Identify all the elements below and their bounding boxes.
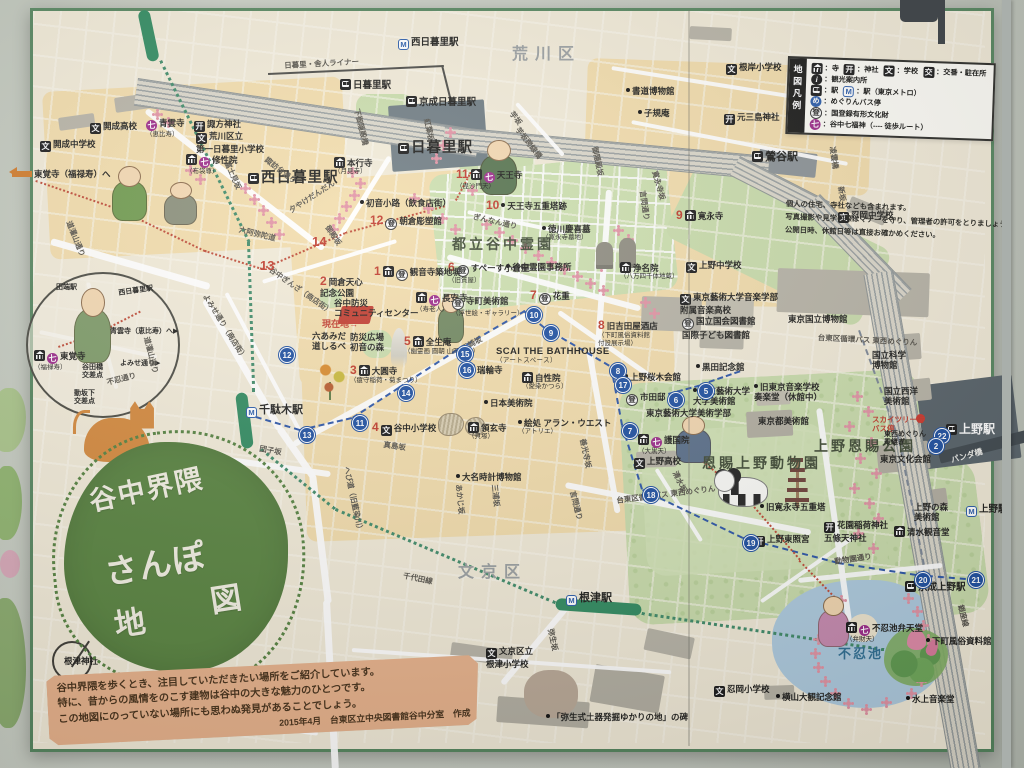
megurin-busstop-16: 16 <box>459 362 475 378</box>
label-text: 初音小路（飲食店街） <box>366 198 451 208</box>
title-line1: 谷中界隈 <box>85 456 207 518</box>
legend-item-label: ：谷中七福神（---- 徒歩ルート） <box>822 119 927 133</box>
temple-icon <box>359 365 370 376</box>
label-text-line2: 美術館 <box>914 512 948 522</box>
label-text: 上野の森 <box>914 502 948 512</box>
poi-label: 9寛永寺 <box>676 208 723 222</box>
metro-icon: M <box>246 407 257 418</box>
poi-label: 文東京藝術大学音楽学部附属音楽高校 <box>680 292 778 315</box>
sakura-route-marker <box>453 227 458 232</box>
label-text: 旧寛永寺五重塔 <box>766 502 826 512</box>
megurin-busstop-6: 6 <box>668 392 684 408</box>
label-text-line2: 奏楽堂（休館中） <box>754 392 822 402</box>
shinobazu-pond-label: 不忍池 <box>838 646 883 661</box>
sakura-route-marker <box>847 424 852 429</box>
poi-label: 七東覚寺（福禄寿） <box>34 350 86 372</box>
poi-label: 東京国立博物館 <box>788 314 848 324</box>
poi-label: 東京文化会館 <box>880 454 931 464</box>
temple-icon <box>846 622 857 633</box>
label-text: 田端駅 <box>56 284 77 291</box>
label-text: 根岸小学校 <box>739 62 782 72</box>
label-text: 開成高校 <box>103 121 137 131</box>
wall-pillar <box>1002 0 1011 768</box>
label-text: 寛永寺 <box>698 211 724 221</box>
label-text: 花園稲荷神社 <box>837 520 888 530</box>
sakura-route-marker <box>358 181 363 186</box>
poi-label: 領玄寺（貝塚） <box>468 422 507 441</box>
station-icon <box>248 173 259 184</box>
temple-icon <box>413 336 424 347</box>
road-label: あかじ坂 <box>453 484 465 515</box>
label-subtext: （愛染かつら） <box>522 383 568 391</box>
label-text: 日暮里駅 <box>353 80 391 91</box>
label-text: 東京都美術館 <box>758 416 809 426</box>
spot-number: 10 <box>486 198 499 212</box>
info-icon: i <box>811 74 822 85</box>
poi-label: 文開成中学校 <box>40 139 96 152</box>
label-text: 護国院 <box>664 435 690 445</box>
yanaka-cemetery-label: 都立谷中霊園 <box>452 236 554 253</box>
label-text: 西日暮里駅 <box>411 37 459 48</box>
megurin-busstop-12: 12 <box>279 347 295 363</box>
sakura-route-marker <box>915 609 920 614</box>
wall-leaf-decoration <box>0 598 26 728</box>
label-text: 朝倉彫塑館 <box>399 216 442 226</box>
label-text: 青雲寺（恵比寿）へ▶ <box>110 328 178 335</box>
label-subtext: （下町風俗資料館 <box>598 332 658 340</box>
sakura-route-marker <box>601 288 606 293</box>
station-sm-label: 京成日暮里駅 <box>406 96 476 108</box>
wall-flower-decoration <box>0 550 20 578</box>
label-text: 上野駅 <box>959 422 995 436</box>
sakura-route-marker <box>352 193 357 198</box>
police-icon: 交 <box>923 67 934 78</box>
label-subtext: （恵比寿） <box>146 131 185 139</box>
legend-item-label: ：神社 <box>857 65 879 77</box>
poi-label: 旧東京音楽学校奏楽堂（休館中） <box>754 382 822 402</box>
megurin-busstop-19: 19 <box>743 535 759 551</box>
map-legend: 地図凡例 ：寺开：神社文：学校交：交番・駐在所i：観光案内所：駅M：駅（東京メト… <box>785 56 996 141</box>
seven-icon: 七 <box>199 157 210 168</box>
temple-icon <box>620 262 631 273</box>
legend-rows: ：寺开：神社文：学校交：交番・駐在所i：観光案内所：駅M：駅（東京メトロ）め：め… <box>804 59 993 139</box>
poi-label: 4文谷中小学校 <box>372 420 436 436</box>
poi-sm-label: 谷田橋交差点 <box>82 364 103 381</box>
label-text: SCAI THE BATHHOUSE <box>496 346 610 357</box>
station-icon <box>398 143 409 154</box>
poi-label: 横山大観記念館 <box>776 692 842 702</box>
poi-dot <box>484 400 488 404</box>
label-text: 東覚寺（福禄寿）へ <box>34 169 111 179</box>
megurin-icon: め <box>810 96 821 107</box>
poi-sm-label: 東西めぐりん乗継ぎ <box>884 431 926 448</box>
label-text: スカイツリー行 <box>872 415 925 424</box>
sakura-route-marker <box>261 208 266 213</box>
label-text: 全生庵 <box>426 337 452 347</box>
poi-dot <box>360 200 364 204</box>
poi-label: 2岡倉天心記念公園 <box>320 274 363 298</box>
label-text: 元三島神社 <box>737 112 780 122</box>
school-icon: 文 <box>883 65 894 76</box>
label-text: 防災広場 <box>350 332 384 342</box>
poi-label: 国立西洋美術館 <box>884 386 918 406</box>
label-text: 不忍池弁天堂 <box>872 623 923 633</box>
station-nezu: M根津駅 <box>566 592 612 606</box>
sakura-route-marker <box>846 701 851 706</box>
poi-label: 登寺町美術館（浮世絵・ギャラリー） <box>452 296 524 318</box>
label-text: 京成日暮里駅 <box>419 97 476 108</box>
chrysanthemum-illustration <box>316 360 350 400</box>
poi-label: 8旧吉田屋酒店（下町風俗資料館付設展示場） <box>598 318 658 347</box>
poi-label: 本行寺（月見寺） <box>334 157 373 176</box>
label-text: 浄名院 <box>633 263 659 273</box>
poi-dot <box>501 203 505 207</box>
legend-item: 开：神社 <box>844 64 879 76</box>
hanging-rod <box>938 0 945 44</box>
poi-label: 10天王寺五重塔跡 <box>486 198 567 212</box>
poi-dot <box>456 474 460 478</box>
title-line3b: 図 <box>207 572 245 621</box>
sakura-route-marker <box>864 707 869 712</box>
megurin-busstop-21: 21 <box>968 572 984 588</box>
label-text: 国立科学 <box>872 350 906 360</box>
label-text-line2: 博物館 <box>872 360 906 370</box>
poi-label: 文荒川区立第一日暮里小学校 <box>196 131 264 154</box>
poi-label: 初音小路（飲食店街） <box>360 198 451 208</box>
metro-icon: M <box>566 595 577 606</box>
seam-line <box>688 10 690 746</box>
label-text: 領玄寺 <box>481 423 507 433</box>
label-text: 清水観音堂 <box>907 527 950 537</box>
poi-label: 11七天王寺（毘沙門天） <box>456 167 522 191</box>
megurin-busstop-9: 9 <box>543 325 559 341</box>
label-text: 国立西洋 <box>884 386 918 396</box>
label-text: 「弥生式土器発掘ゆかりの地」の碑 <box>552 712 688 722</box>
sakura-route-marker <box>252 197 257 202</box>
poi-dot <box>542 226 546 230</box>
poi-dot <box>693 388 697 392</box>
sakura-route-marker <box>616 228 621 233</box>
seven-icon: 七 <box>429 295 440 306</box>
school-icon: 文 <box>634 458 645 469</box>
poi-dot <box>546 714 550 718</box>
spot-number: 8 <box>598 318 605 332</box>
label-subtext: （月見寺） <box>334 168 373 176</box>
school-icon: 文 <box>714 686 725 697</box>
sakura-route-marker <box>823 679 828 684</box>
label-text-line2: 交差点 <box>74 398 95 406</box>
label-text: 書道博物館 <box>632 86 675 96</box>
label-text: 本行寺 <box>347 158 373 168</box>
label-text: 徳川慶喜墓 <box>548 224 591 234</box>
label-text: 天王寺五重塔跡 <box>507 201 567 211</box>
shrine-icon: 开 <box>724 114 735 125</box>
label-text: 観音寺築地塀 <box>410 267 461 277</box>
label-text: 谷中小学校 <box>394 423 437 433</box>
label-text: 文京区立 <box>499 646 533 656</box>
megurin-busstop-2: 2 <box>928 438 944 454</box>
label-text: 14 <box>312 234 326 249</box>
bunkazai-icon: 登 <box>810 107 822 119</box>
district-bunkyo: 文京区 <box>458 564 527 583</box>
temple-icon <box>383 266 394 277</box>
poi-latin-label: SCAI THE BATHHOUSE（アートスペース） <box>496 346 610 365</box>
poi-dot <box>926 638 930 642</box>
num-lone-label: 14 <box>312 234 326 249</box>
poi-sm-label: 田端駅 <box>56 284 77 292</box>
legend-item-label: ：寺 <box>824 63 839 74</box>
station-uguisudani: 鶯谷駅 <box>752 151 798 164</box>
label-text: 黒田記念館 <box>702 362 745 372</box>
poi-label: 旧寛永寺五重塔 <box>760 502 826 512</box>
megurin-busstop-14: 14 <box>398 385 414 401</box>
temple-icon <box>522 372 533 383</box>
sakura-route-marker <box>871 546 876 551</box>
wall-leaf-decoration <box>0 388 26 452</box>
current-location-marker: 現在地→ <box>322 319 358 330</box>
label-text: 千駄木駅 <box>259 404 303 416</box>
bunkazai-icon: 登 <box>626 394 638 406</box>
sakura-route-marker <box>866 409 871 414</box>
poi-label: 文上野高校 <box>634 456 681 469</box>
label-text-line2: 道しるべ <box>312 341 346 351</box>
poi-label: 東覚寺（福禄寿）へ <box>34 169 111 179</box>
label-subtext: （毘沙門天） <box>456 183 522 191</box>
label-text: 荒川区 <box>512 46 581 63</box>
poi-label: 浄名院（八万四千体地蔵） <box>620 262 679 281</box>
poi-label: 黒田記念館 <box>696 362 745 372</box>
spot-number: 12 <box>370 213 383 227</box>
label-text-line2: 根津小学校 <box>486 659 533 669</box>
temple-icon <box>894 526 905 537</box>
station-icon <box>752 151 763 162</box>
label-text: すぺーす小倉屋 <box>471 263 530 273</box>
poi-label: 国立科学博物館 <box>872 350 906 370</box>
poi-label: 東京都美術館 <box>758 416 809 426</box>
label-text-line2: 附属音楽高校 <box>680 305 778 315</box>
label-text: 上野東照宮 <box>767 534 810 544</box>
poi-label: 子規庵 <box>638 108 670 118</box>
temple-icon <box>685 210 696 221</box>
label-text-line2: 五條天神社 <box>824 533 888 543</box>
ueno-zoo-label: 恩賜上野動物園 <box>702 455 821 472</box>
sakura-route-marker <box>874 471 879 476</box>
legend-item: 七：谷中七福神（---- 徒歩ルート） <box>809 119 927 134</box>
poi-label: 7登花重 <box>530 288 570 305</box>
seven-icon: 七 <box>484 172 495 183</box>
spot-number: 11 <box>456 167 469 181</box>
sakura-route-marker <box>277 232 282 237</box>
temple-icon <box>638 434 649 445</box>
label-text: 六あみだ <box>312 331 346 341</box>
sakura-route-marker <box>344 204 349 209</box>
poi-dot <box>776 694 780 698</box>
temple-icon <box>811 63 822 74</box>
sakura-route-marker <box>884 700 889 705</box>
panda-illustration <box>718 472 766 510</box>
label-text: 天王寺 <box>497 170 523 180</box>
label-text: 日暮里駅 <box>411 140 473 156</box>
station-nippori: 日暮里駅 <box>398 140 473 157</box>
label-text: 動坂下 <box>74 390 95 397</box>
bunkazai-icon: 登 <box>396 269 408 281</box>
spot-number: 1 <box>374 264 381 278</box>
label-text: 現在地→ <box>322 319 358 329</box>
poi-label: 谷中防災コミュニティセンター <box>334 298 419 318</box>
label-text-line2: 記念公園 <box>320 288 363 298</box>
poi-sm-label: 動坂下交差点 <box>74 390 95 407</box>
label-text: 旧吉田屋酒店 <box>607 321 658 331</box>
label-text: 瑞輪寺 <box>477 365 503 375</box>
station-icon <box>905 581 916 592</box>
label-subtext: （布袋尊） <box>186 168 238 176</box>
label-text: 東京文化会館 <box>880 454 931 464</box>
legend-item: 文：学校 <box>883 65 918 77</box>
label-text: 横山大観記念館 <box>782 692 842 702</box>
label-subtext: （アトリエ） <box>518 428 611 436</box>
poi-dot <box>626 88 630 92</box>
poi-label: 1登観音寺築地塀 <box>374 264 461 281</box>
label-text-line2: 乗継ぎ <box>884 439 926 447</box>
poi-dot <box>638 110 642 114</box>
label-text: 真島坂 <box>383 440 407 452</box>
sakura-route-marker <box>816 665 821 670</box>
sakura-route-marker <box>497 230 502 235</box>
bunkazai-icon: 登 <box>539 293 551 305</box>
label-text-line2: コミュニティセンター <box>334 308 419 318</box>
label-text-line2: 美術館 <box>884 396 918 406</box>
label-text: 修性院 <box>212 155 238 165</box>
temple-icon <box>334 157 345 168</box>
label-text: 大名時計博物館 <box>462 472 522 482</box>
label-subtext: （浮世絵・ギャラリー） <box>452 310 524 318</box>
poi-sm-label: 青雲寺（恵比寿）へ▶ <box>110 328 178 336</box>
poi-label: 下町風俗資料館 <box>926 636 992 646</box>
district-arakawa: 荒川区 <box>512 46 581 65</box>
legend-item-label: ：駅 <box>824 85 839 96</box>
label-text: 東覚寺 <box>60 351 86 361</box>
road-label: 三浦坂 <box>489 484 500 507</box>
poi-label: 文根岸小学校 <box>726 62 782 75</box>
label-text: 水上音楽堂 <box>912 694 955 704</box>
poi-label: 「弥生式土器発掘ゆかりの地」の碑 <box>546 712 688 722</box>
school-icon: 文 <box>90 123 101 134</box>
label-text: 恩賜上野動物園 <box>702 455 821 471</box>
poi-label: 自性院（愛染かつら） <box>522 372 568 391</box>
sakura-route-marker <box>906 596 911 601</box>
title-line3a: 地 <box>111 596 149 645</box>
poi-label: 六あみだ道しるべ <box>312 331 346 351</box>
poi-label: 12登朝倉彫塑館 <box>370 213 442 230</box>
label-text: 荒川区立 <box>209 131 243 141</box>
poi-label: 大名時計博物館 <box>456 472 522 482</box>
sakura-route-marker <box>536 253 541 258</box>
sakura-route-marker <box>652 311 657 316</box>
sakura-route-marker <box>867 501 872 506</box>
map-title: 谷中界隈 さんぽ 地 図 <box>64 442 288 672</box>
label-subtext: （弁財天） <box>846 636 923 644</box>
temple-icon <box>34 350 45 361</box>
station-icon <box>406 96 417 107</box>
sakura-route-marker <box>269 220 274 225</box>
poi-label: 七護国院（大黒天） <box>638 434 690 456</box>
sakura-route-marker <box>813 651 818 656</box>
poi-label: 防災広場初音の森 <box>350 332 384 352</box>
megurin-busstop-15: 15 <box>457 346 473 362</box>
label-text: 花重 <box>553 291 570 301</box>
poi-dot <box>906 696 910 700</box>
station-ueno: 上野駅 <box>946 422 995 436</box>
poi-label: 开元三島神社 <box>724 112 780 125</box>
label-text: 諏方神社 <box>207 119 241 129</box>
temple-icon <box>468 422 479 433</box>
poi-label: 开花園稲荷神社五條天神社 <box>824 520 888 543</box>
poi-label: 文文京区立根津小学校 <box>486 646 533 669</box>
benzaiten-illustration <box>816 596 850 646</box>
legend-row: 登：国登録有形文化財七：谷中七福神（---- 徒歩ルート） <box>809 107 988 136</box>
spot-number: 9 <box>676 208 683 222</box>
sakura-route-marker <box>337 216 342 221</box>
school-icon: 文 <box>486 648 497 659</box>
spot-number: 5 <box>404 334 411 348</box>
label-text: 忍岡小学校 <box>727 684 770 694</box>
poi-label: 水上音楽堂 <box>906 694 955 704</box>
sakura-route-marker <box>198 177 203 182</box>
label-text: 下町風俗資料館 <box>932 636 992 646</box>
school-icon: 文 <box>196 133 207 144</box>
label-text-line2: 交差点 <box>82 372 103 380</box>
station-sm-label: 京成上野駅 <box>905 581 966 593</box>
station-icon <box>811 85 822 96</box>
poi-label: 登市田邸 <box>626 392 666 406</box>
poi-dot <box>760 504 764 508</box>
station-nishi-nippori-metro: M西日暮里駅 <box>398 37 459 50</box>
poi-label: 3大圓寺（瘡守稲荷・菊まつり） <box>350 363 422 385</box>
spot-number: 3 <box>350 363 357 377</box>
label-text: 東京国立博物館 <box>788 314 848 324</box>
label-text: 上野桜木会館 <box>630 372 681 382</box>
num-lone-label: 13 <box>260 258 274 273</box>
label-text: 上野高校 <box>647 456 681 466</box>
label-text: 岡倉天心 <box>329 277 363 287</box>
label-text: 開成中学校 <box>53 139 96 149</box>
label-text: 鶯谷駅 <box>765 151 798 163</box>
metro-icon: M <box>966 506 977 517</box>
poi-label: 七不忍池弁天堂（弁財天） <box>846 622 923 644</box>
seven-icon: 七 <box>651 437 662 448</box>
label-text: 都立谷中霊園 <box>452 236 554 252</box>
label-text: 東京藝術大学音楽学部 <box>693 292 778 302</box>
megurin-busstop-7: 7 <box>622 423 638 439</box>
school-icon: 文 <box>726 64 737 75</box>
label-text: 子規庵 <box>644 108 670 118</box>
legend-item: 交：交番・駐在所 <box>923 67 987 80</box>
poi-label: 清水観音堂 <box>894 526 950 537</box>
temple-icon <box>471 169 482 180</box>
megurin-busstop-20: 20 <box>915 572 931 588</box>
road-label: 凌雲橋 <box>827 146 839 170</box>
label-subtext: （貝塚） <box>468 433 507 441</box>
poi-dot <box>518 420 522 424</box>
shrine-icon: 开 <box>844 64 855 75</box>
label-text: 13 <box>260 258 274 273</box>
seven-icon: 七 <box>47 353 58 364</box>
poi-label: 絵処 アラン・ウエスト（アトリエ） <box>518 418 611 436</box>
spot-number: 4 <box>372 420 379 434</box>
wall-leaf-decoration <box>0 466 22 540</box>
shrine-icon: 开 <box>824 522 835 533</box>
label-subtext: （瘡守稲荷・菊まつり） <box>350 377 422 385</box>
